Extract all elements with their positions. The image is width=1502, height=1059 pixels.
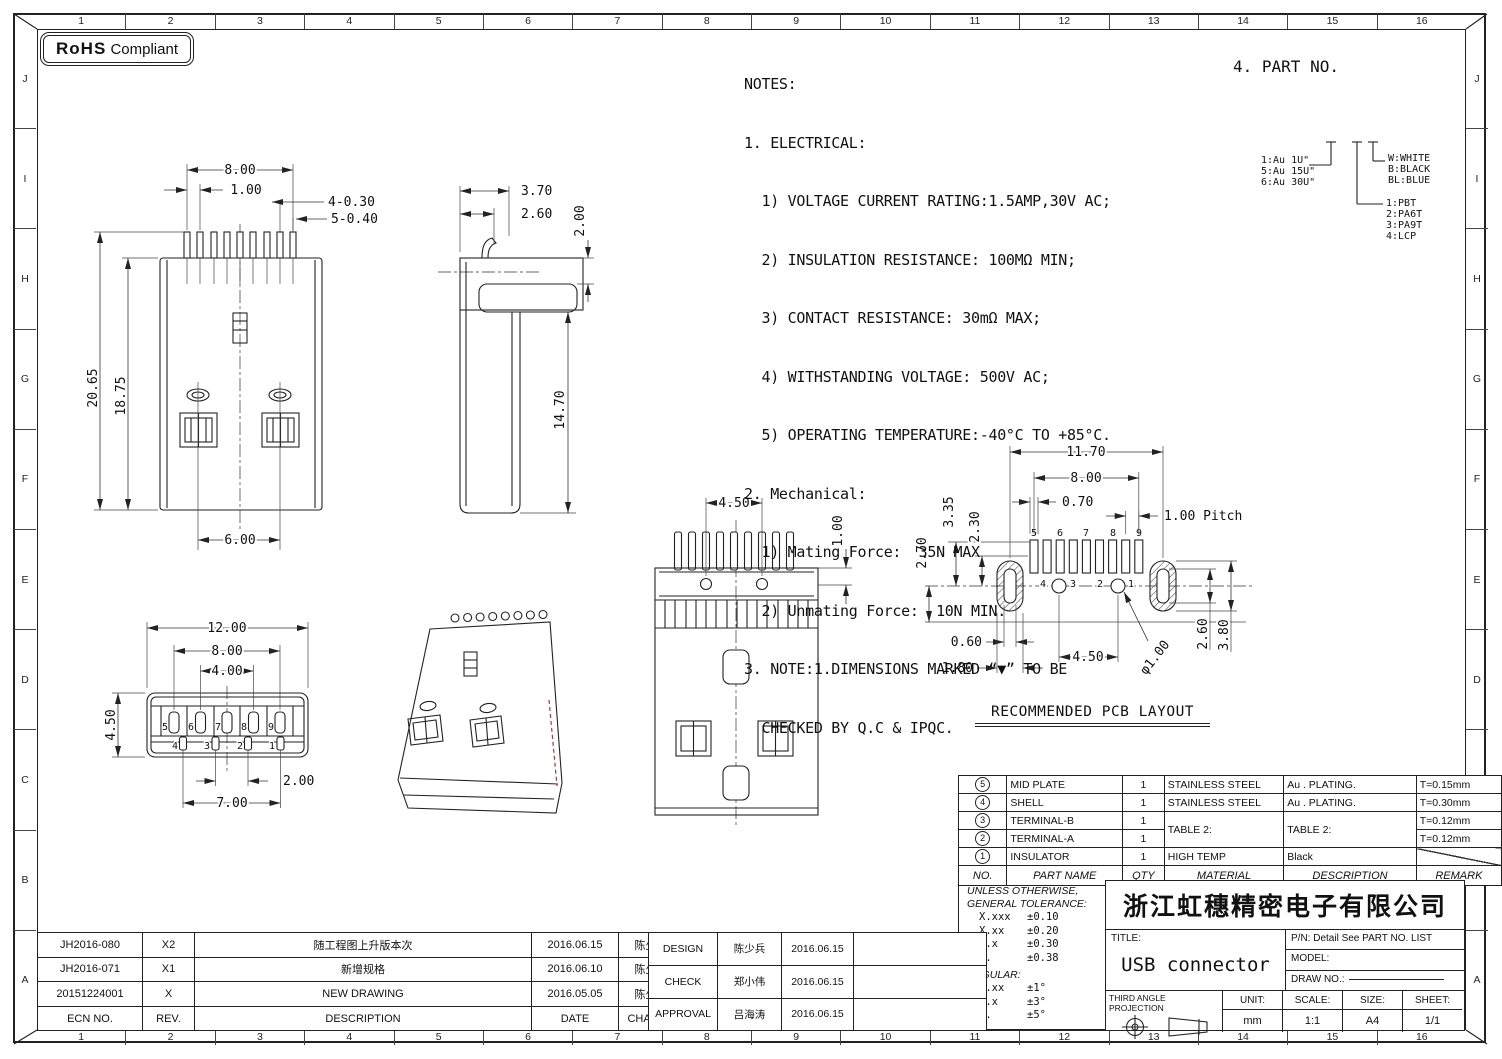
part-name: TERMINAL-B	[1007, 812, 1123, 830]
tol-value: ±0.30	[1027, 938, 1059, 950]
tol-value: ±1°	[1027, 982, 1046, 994]
remark-diagonal	[1416, 848, 1501, 866]
signoff-table: DESIGN 陈少兵 2016.06.15 CHECK 郑小伟 2016.06.…	[648, 932, 987, 1031]
item-number: 5	[975, 777, 990, 792]
notes-line: 3) CONTACT RESISTANCE: 30mΩ MAX;	[744, 309, 1111, 329]
grid-col-label: 6	[484, 1030, 573, 1045]
grid-row-label: J	[1466, 29, 1488, 129]
tol-key: X.xxx	[979, 911, 1027, 925]
grid-row-label: C	[14, 730, 36, 830]
projection-label: THIRD ANGLE PROJECTION	[1109, 993, 1222, 1013]
sheet-cell: SHEET: 1/1	[1403, 991, 1462, 1032]
column-header: ECN NO.	[38, 1006, 143, 1031]
material: STAINLESS STEEL	[1164, 794, 1283, 812]
grid-col-label: 3	[216, 1030, 305, 1045]
grid-row-label: B	[14, 831, 36, 931]
part-name: SHELL	[1007, 794, 1123, 812]
size-cell: SIZE: A4	[1343, 991, 1403, 1032]
notes-line: 3. NOTE:1.DIMENSIONS MARKED “▼” TO BE	[744, 660, 1111, 680]
table-row: 4 SHELL 1 STAINLESS STEEL Au . PLATING. …	[959, 794, 1502, 812]
grid-col-label: 16	[1378, 1030, 1466, 1045]
grid-row-label: G	[14, 330, 36, 430]
bom-table: 5 MID PLATE 1 STAINLESS STEEL Au . PLATI…	[958, 775, 1502, 886]
pcb-layout-title-text: RECOMMENDED PCB LAYOUT	[975, 704, 1210, 720]
grid-col-label: 13	[1110, 14, 1199, 29]
signoff-name: 陈少兵	[718, 933, 782, 966]
rev-description: 新增规格	[195, 957, 532, 982]
grid-col-label: 12	[1020, 1030, 1109, 1045]
grid-row-label: E	[14, 530, 36, 630]
grid-col-label: 9	[752, 1030, 841, 1045]
grid-row-label: J	[14, 29, 36, 129]
tolerance-row: X.xx±0.20	[967, 925, 1105, 939]
model-label: MODEL:	[1286, 950, 1464, 970]
grid-row-label: I	[1466, 129, 1488, 229]
tol-value: ±5°	[1027, 1009, 1046, 1021]
angular-heading: ANGULAR:	[967, 969, 1105, 982]
description: Au . PLATING.	[1284, 776, 1417, 794]
scale-label: SCALE:	[1283, 991, 1342, 1010]
signoff-role: DESIGN	[649, 933, 718, 966]
rev-date: 2016.06.10	[532, 957, 619, 982]
item-number: 4	[975, 795, 990, 810]
material: HIGH TEMP	[1164, 848, 1283, 866]
signoff-name: 郑小伟	[718, 965, 782, 998]
drawing-title: USB connector	[1106, 954, 1285, 976]
column-header: DATE	[532, 1006, 619, 1031]
ecn-no: 20151224001	[38, 982, 143, 1007]
remark: T=0.12mm	[1416, 812, 1501, 830]
third-angle-projection-icon	[1109, 1013, 1219, 1041]
item-number: 2	[975, 831, 990, 846]
table-row: APPROVAL 吕海涛 2016.06.15	[649, 998, 987, 1031]
rev-description: 随工程图上升版本次	[195, 933, 532, 958]
notes-line: 1) VOLTAGE CURRENT RATING:1.5AMP,30V AC;	[744, 192, 1111, 212]
rev: X1	[143, 957, 195, 982]
signoff-blank	[854, 998, 987, 1031]
grid-row-label: H	[1466, 229, 1488, 329]
table-row: 20151224001 X NEW DRAWING 2016.05.05 陈少兵	[38, 982, 684, 1007]
size-value: A4	[1343, 1010, 1402, 1032]
partno-material-list: 1:PBT 2:PA6T 3:PA9T 4:LCP	[1386, 198, 1422, 242]
grid-col-label: 7	[573, 1030, 662, 1045]
notes-line: 2) Unmating Force: 10N MIN.	[744, 602, 1111, 622]
grid-row-label: G	[1466, 330, 1488, 430]
grid-col-label: 6	[484, 14, 573, 29]
signoff-role: CHECK	[649, 965, 718, 998]
grid-row-label: A	[1466, 931, 1488, 1030]
grid-col-label: 9	[752, 14, 841, 29]
pcb-layout-title: RECOMMENDED PCB LAYOUT	[975, 704, 1210, 727]
unit-label: UNIT:	[1223, 991, 1282, 1010]
grid-row-label: F	[1466, 430, 1488, 530]
table-row: 1 INSULATOR 1 HIGH TEMP Black	[959, 848, 1502, 866]
qty: 1	[1123, 830, 1165, 848]
grid-col-label: 8	[663, 1030, 752, 1045]
tol-value: ±0.20	[1027, 925, 1059, 937]
notes-line: 1. ELECTRICAL:	[744, 134, 1111, 154]
partno-plating-list: 1:Au 1U" 5:Au 15U" 6:Au 30U"	[1261, 155, 1315, 188]
column-header: REV.	[143, 1006, 195, 1031]
sheet-value: 1/1	[1403, 1010, 1462, 1032]
underline	[975, 723, 1210, 724]
grid-col-label: 8	[663, 14, 752, 29]
tolerance-row: X.±0.38	[967, 952, 1105, 966]
part-name: INSULATOR	[1007, 848, 1123, 866]
qty: 1	[1123, 812, 1165, 830]
remark: T=0.15mm	[1416, 776, 1501, 794]
column-header: DESCRIPTION	[195, 1006, 532, 1031]
grid-col-label: 12	[1020, 14, 1109, 29]
rev-date: 2016.06.15	[532, 933, 619, 958]
scale-value: 1:1	[1283, 1010, 1342, 1032]
notes-block: NOTES: 1. ELECTRICAL: 1) VOLTAGE CURRENT…	[744, 36, 1111, 758]
tol-value: ±0.38	[1027, 952, 1059, 964]
revision-header-row: ECN NO. REV. DESCRIPTION DATE CHANGE	[38, 1006, 684, 1031]
grid-col-label: 2	[126, 1030, 215, 1045]
unit-value: mm	[1223, 1010, 1282, 1032]
grid-ruler-top: 1 2 3 4 5 6 7 8 9 10 11 12 13 14 15 16	[37, 14, 1466, 29]
table-row: DESIGN 陈少兵 2016.06.15	[649, 933, 987, 966]
part-name: TERMINAL-A	[1007, 830, 1123, 848]
underline	[975, 726, 1210, 727]
remark: T=0.12mm	[1416, 830, 1501, 848]
rohs-rest: Compliant	[110, 41, 178, 58]
rohs-badge: RoHS Compliant	[40, 32, 194, 66]
draw-no-row: DRAW NO.:	[1286, 971, 1464, 990]
rev: X	[143, 982, 195, 1007]
part-name: MID PLATE	[1007, 776, 1123, 794]
drawing-sheet: 8.00 1.00 4-0.30 5-0.40 20.65 18.75 6.00	[0, 0, 1502, 1059]
grid-row-label: E	[1466, 530, 1488, 630]
part-number-note: P/N: Detail See PART NO. LIST	[1286, 930, 1464, 950]
grid-row-label: I	[14, 129, 36, 229]
grid-row-label: F	[14, 430, 36, 530]
grid-row-label: D	[14, 630, 36, 730]
grid-col-label: 14	[1199, 14, 1288, 29]
sheet-label: SHEET:	[1403, 991, 1462, 1010]
title-block: 浙江虹穗精密电子有限公司 TITLE: USB connector P/N: D…	[1105, 880, 1465, 1031]
tolerance-row: X.xxx±0.10	[967, 911, 1105, 925]
signoff-name: 吕海涛	[718, 998, 782, 1031]
qty: 1	[1123, 794, 1165, 812]
grid-col-label: 15	[1288, 1030, 1377, 1045]
revision-table: JH2016-080 X2 随工程图上升版本次 2016.06.15 陈少兵 J…	[37, 932, 684, 1031]
draw-no-label: DRAW NO.:	[1291, 974, 1345, 985]
signoff-date: 2016.06.15	[782, 998, 854, 1031]
signoff-date: 2016.06.15	[782, 933, 854, 966]
remark: T=0.30mm	[1416, 794, 1501, 812]
grid-col-label: 10	[841, 1030, 930, 1045]
partno-title: 4. PART NO.	[1233, 57, 1339, 76]
grid-col-label: 4	[305, 1030, 394, 1045]
tolerance-row: X.x±0.30	[967, 938, 1105, 952]
grid-col-label: 5	[395, 1030, 484, 1045]
grid-col-label: 3	[216, 14, 305, 29]
notes-line: NOTES:	[744, 75, 1111, 95]
material: TABLE 2:	[1164, 812, 1283, 848]
grid-col-label: 11	[931, 14, 1020, 29]
grid-col-label: 4	[305, 14, 394, 29]
notes-line: 2) INSULATION RESISTANCE: 100MΩ MIN;	[744, 251, 1111, 271]
projection-cell: THIRD ANGLE PROJECTION	[1106, 991, 1223, 1032]
tolerance-row: X.x±3°	[967, 996, 1105, 1010]
partno-color-list: W:WHITE B:BLACK BL:BLUE	[1388, 153, 1430, 186]
size-label: SIZE:	[1343, 991, 1402, 1010]
description: TABLE 2:	[1284, 812, 1417, 848]
grid-col-label: 7	[573, 14, 662, 29]
unit-cell: UNIT: mm	[1223, 991, 1283, 1032]
signoff-role: APPROVAL	[649, 998, 718, 1031]
qty: 1	[1123, 776, 1165, 794]
grid-col-label: 11	[931, 1030, 1020, 1045]
scale-cell: SCALE: 1:1	[1283, 991, 1343, 1032]
tol-value: ±3°	[1027, 996, 1046, 1008]
signoff-blank	[854, 933, 987, 966]
grid-col-label: 16	[1378, 14, 1466, 29]
material: STAINLESS STEEL	[1164, 776, 1283, 794]
tol-value: ±0.10	[1027, 911, 1059, 923]
grid-row-label: H	[14, 229, 36, 329]
grid-col-label: 15	[1288, 14, 1377, 29]
notes-line: 4) WITHSTANDING VOLTAGE: 500V AC;	[744, 368, 1111, 388]
company-name: 浙江虹穗精密电子有限公司	[1106, 881, 1464, 930]
tolerance-heading: GENERAL TOLERANCE:	[967, 898, 1105, 911]
grid-col-label: 1	[37, 1030, 126, 1045]
tolerance-heading: UNLESS OTHERWISE,	[967, 885, 1105, 898]
grid-row-label: A	[14, 931, 36, 1030]
item-number: 3	[975, 813, 990, 828]
grid-ruler-bottom: 1 2 3 4 5 6 7 8 9 10 11 12 13 14 15 16	[37, 1030, 1466, 1045]
ecn-no: JH2016-080	[38, 933, 143, 958]
grid-col-label: 1	[37, 14, 126, 29]
ecn-no: JH2016-071	[38, 957, 143, 982]
table-row: JH2016-071 X1 新增规格 2016.06.10 陈少兵	[38, 957, 684, 982]
notes-line: 2. Mechanical:	[744, 485, 1111, 505]
rev-date: 2016.05.05	[532, 982, 619, 1007]
description: Au . PLATING.	[1284, 794, 1417, 812]
notes-line: 1) Mating Force: 35N MAX	[744, 543, 1111, 563]
blank-line	[1349, 979, 1444, 980]
grid-row-label: D	[1466, 630, 1488, 730]
table-row: 5 MID PLATE 1 STAINLESS STEEL Au . PLATI…	[959, 776, 1502, 794]
rev-description: NEW DRAWING	[195, 982, 532, 1007]
rohs-strong: RoHS	[56, 39, 106, 58]
tolerance-row: X.xx±1°	[967, 982, 1105, 996]
rev: X2	[143, 933, 195, 958]
grid-ruler-left: J I H G F E D C B A	[14, 29, 36, 1030]
signoff-blank	[854, 965, 987, 998]
notes-line: 5) OPERATING TEMPERATURE:-40°C TO +85°C.	[744, 426, 1111, 446]
table-row: 3 TERMINAL-B 1 TABLE 2: TABLE 2: T=0.12m…	[959, 812, 1502, 830]
grid-col-label: 5	[395, 14, 484, 29]
description: Black	[1284, 848, 1417, 866]
title-cell: TITLE: USB connector	[1106, 930, 1286, 990]
title-label: TITLE:	[1111, 933, 1141, 944]
grid-col-label: 10	[841, 14, 930, 29]
tolerance-row: X.±5°	[967, 1009, 1105, 1023]
item-number: 1	[975, 849, 990, 864]
table-row: CHECK 郑小伟 2016.06.15	[649, 965, 987, 998]
table-row: JH2016-080 X2 随工程图上升版本次 2016.06.15 陈少兵	[38, 933, 684, 958]
signoff-date: 2016.06.15	[782, 965, 854, 998]
grid-col-label: 2	[126, 14, 215, 29]
qty: 1	[1123, 848, 1165, 866]
